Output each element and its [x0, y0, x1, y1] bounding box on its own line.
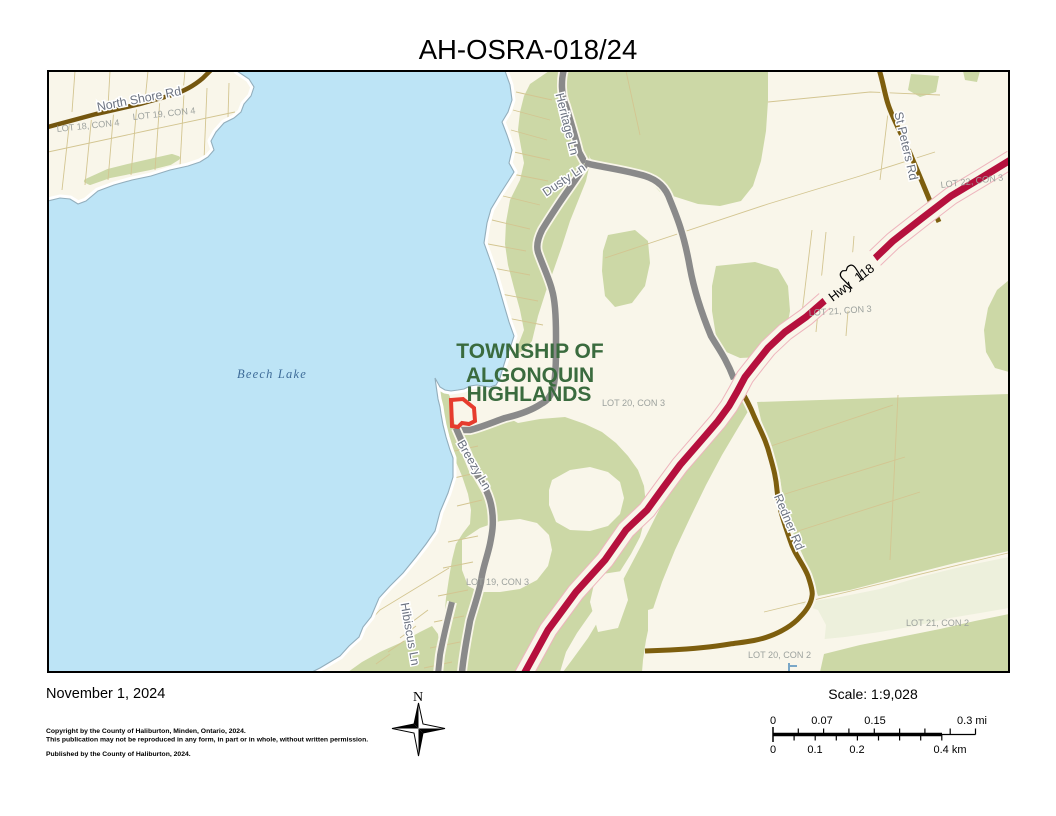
- svg-text:AH-OSRA-018/24: AH-OSRA-018/24: [419, 34, 638, 65]
- svg-text:0.4 km: 0.4 km: [933, 744, 966, 756]
- svg-text:TOWNSHIP OF: TOWNSHIP OF: [456, 340, 604, 363]
- svg-text:0: 0: [770, 744, 776, 756]
- svg-text:Published by the County of Hal: Published by the County of Haliburton, 2…: [46, 751, 191, 758]
- svg-text:LOT 19, CON 3: LOT 19, CON 3: [466, 577, 529, 587]
- svg-text:0.15: 0.15: [864, 715, 885, 727]
- svg-text:LOT 20, CON 3: LOT 20, CON 3: [602, 398, 665, 408]
- svg-text:0.1: 0.1: [807, 744, 822, 756]
- svg-text:This publication may not be re: This publication may not be reproduced i…: [46, 737, 368, 744]
- svg-text:0.07: 0.07: [811, 715, 832, 727]
- svg-text:LOT 21, CON 2: LOT 21, CON 2: [906, 618, 969, 628]
- svg-text:Scale: 1:9,028: Scale: 1:9,028: [828, 686, 918, 702]
- svg-text:N: N: [413, 690, 423, 705]
- svg-text:HIGHLANDS: HIGHLANDS: [467, 383, 592, 406]
- svg-text:November 1, 2024: November 1, 2024: [46, 686, 165, 702]
- svg-text:Copyright by the County of Hal: Copyright by the County of Haliburton, M…: [46, 728, 246, 735]
- svg-text:0: 0: [770, 715, 776, 727]
- svg-text:LOT 20, CON 2: LOT 20, CON 2: [748, 650, 811, 660]
- svg-text:0.3 mi: 0.3 mi: [957, 715, 987, 727]
- svg-text:Beech Lake: Beech Lake: [237, 367, 307, 381]
- svg-text:0.2: 0.2: [849, 744, 864, 756]
